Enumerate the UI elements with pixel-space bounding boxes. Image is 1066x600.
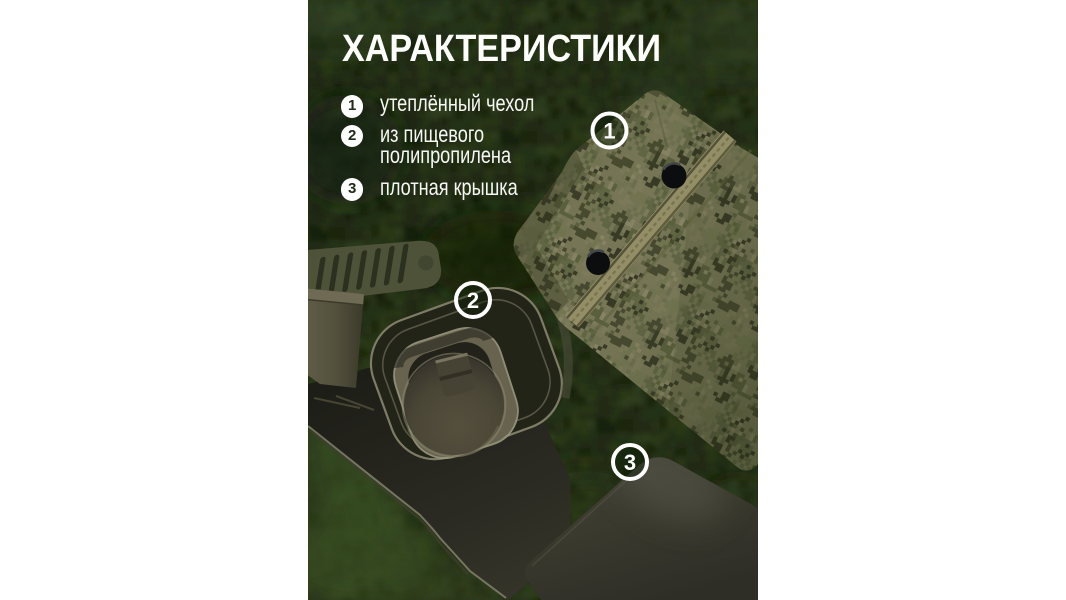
svg-text:3: 3: [624, 450, 636, 475]
svg-text:2: 2: [467, 288, 479, 313]
svg-text:1: 1: [603, 118, 615, 143]
